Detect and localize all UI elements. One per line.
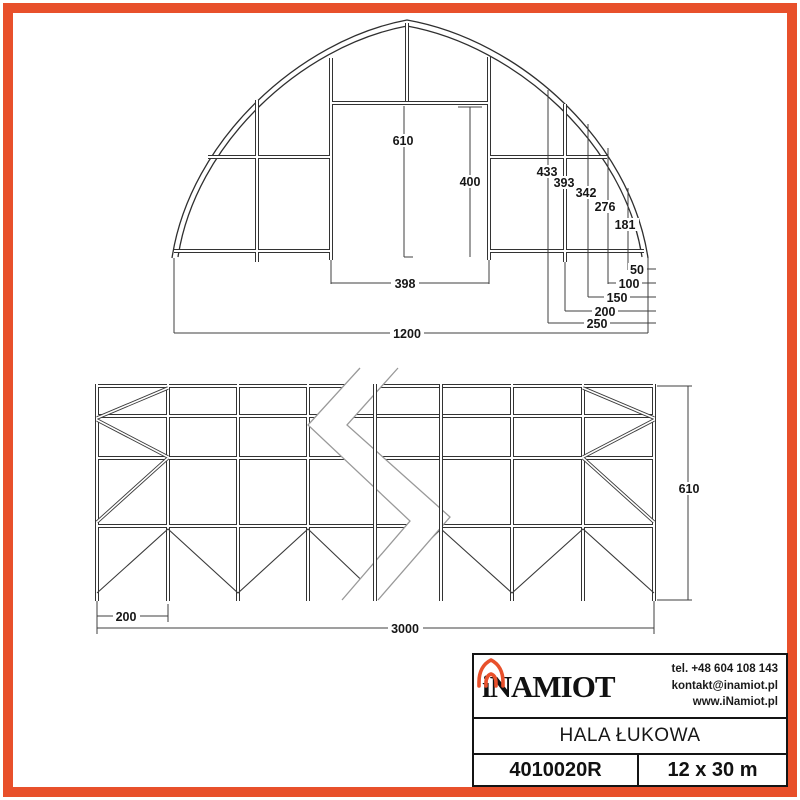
front-dim-400: 400 (457, 175, 484, 189)
model-number-cell: 4010020R (474, 755, 639, 785)
model-number: 4010020R (509, 759, 601, 782)
side-elevation-drawing: 200 3000 610 (97, 368, 703, 636)
hall-size: 12 x 30 m (667, 759, 757, 782)
side-dimension-lines (97, 386, 692, 634)
title-block: iNAMIOT tel. +48 604 108 143 kontakt@ina… (472, 653, 788, 787)
break-symbol (308, 368, 450, 600)
svg-text:150: 150 (607, 291, 628, 305)
front-dim-276: 276 (592, 200, 619, 214)
svg-text:398: 398 (395, 277, 416, 291)
svg-text:610: 610 (393, 134, 414, 148)
model-row: 4010020R 12 x 30 m (474, 753, 786, 785)
svg-text:250: 250 (587, 317, 608, 331)
svg-text:276: 276 (595, 200, 616, 214)
title-block-header-row: iNAMIOT tel. +48 604 108 143 kontakt@ina… (474, 655, 786, 717)
contact-website: www.iNamiot.pl (672, 694, 778, 711)
contact-info: tel. +48 604 108 143 kontakt@inamiot.pl … (672, 661, 778, 711)
front-dimension-lines (174, 90, 656, 333)
front-dim-100: 100 (616, 277, 642, 291)
product-name-row: HALA ŁUKOWA (474, 717, 786, 753)
side-dim-200: 200 (113, 610, 140, 624)
side-dim-3000: 3000 (388, 622, 423, 636)
front-dim-50: 50 (628, 263, 647, 277)
front-dim-342: 342 (573, 186, 600, 200)
front-dim-250: 250 (584, 317, 610, 331)
front-dim-150: 150 (604, 291, 630, 305)
svg-text:342: 342 (576, 186, 597, 200)
svg-text:100: 100 (619, 277, 640, 291)
contact-phone: tel. +48 604 108 143 (672, 661, 778, 678)
front-dim-610: 610 (390, 134, 417, 148)
svg-text:3000: 3000 (391, 622, 419, 636)
svg-text:393: 393 (554, 176, 575, 190)
contact-email: kontakt@inamiot.pl (672, 678, 778, 695)
svg-text:400: 400 (460, 175, 481, 189)
product-name: HALA ŁUKOWA (559, 725, 700, 747)
hall-size-cell: 12 x 30 m (639, 755, 786, 785)
front-dim-181: 181 (612, 218, 639, 232)
front-elevation-drawing: 610 400 433 393 342 276 (172, 20, 656, 341)
svg-text:200: 200 (116, 610, 137, 624)
front-dim-398: 398 (391, 277, 419, 291)
svg-text:50: 50 (630, 263, 644, 277)
svg-text:181: 181 (615, 218, 636, 232)
drawing-page: 610 400 433 393 342 276 (0, 0, 800, 800)
side-dim-610: 610 (675, 482, 703, 496)
front-dim-1200: 1200 (390, 327, 424, 341)
svg-text:610: 610 (679, 482, 700, 496)
svg-text:1200: 1200 (393, 327, 421, 341)
